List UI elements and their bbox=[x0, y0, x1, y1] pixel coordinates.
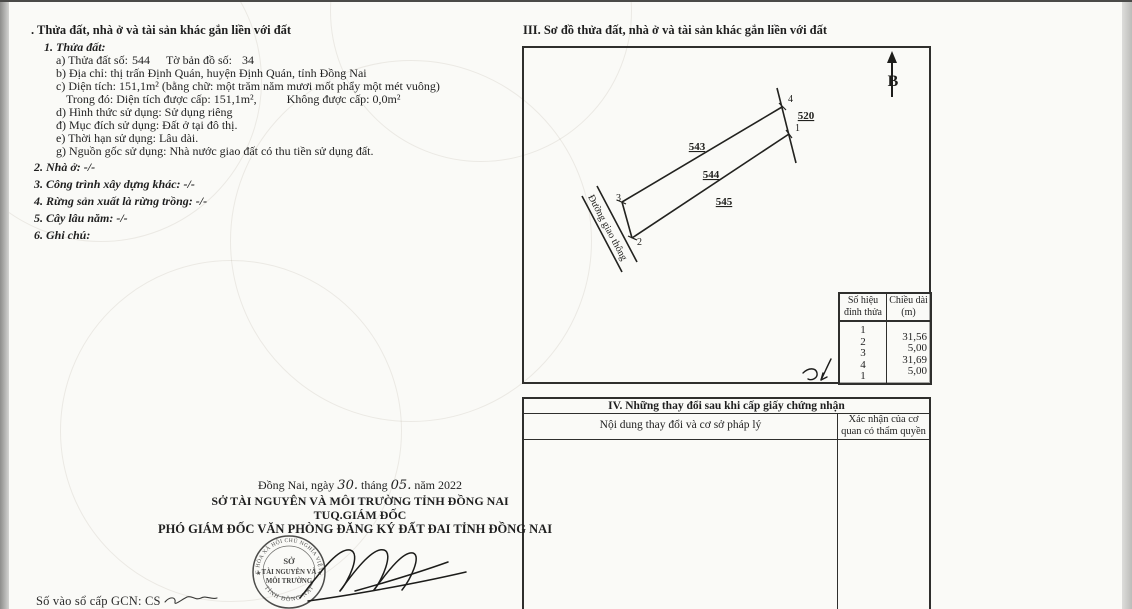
map-sheet-value: 34 bbox=[242, 53, 254, 67]
date-year: năm 2022 bbox=[414, 478, 462, 492]
vertex-id: 1 bbox=[840, 371, 886, 383]
map-sheet-label: Tờ bản đồ số: bbox=[166, 53, 232, 67]
date-month-handwritten: 05. bbox=[391, 478, 412, 493]
changes-table: IV. Những thay đổi sau khi cấp giấy chứn… bbox=[522, 397, 931, 609]
watermark-circle bbox=[60, 260, 402, 602]
parcel-number-value: 544 bbox=[132, 53, 150, 67]
vertex-id-header-line1: Số hiệu bbox=[840, 295, 886, 307]
vertex-id-header: Số hiệu đỉnh thửa bbox=[840, 295, 886, 318]
changes-table-title: IV. Những thay đổi sau khi cấp giấy chứn… bbox=[524, 399, 929, 413]
length-header-line2: (m) bbox=[887, 307, 930, 319]
date-place: Đồng Nai, ngày bbox=[258, 478, 334, 492]
scan-edge-top bbox=[0, 0, 1132, 2]
parcel-number-label: a) Thửa đất số: bbox=[56, 53, 128, 67]
registry-number-note: Số vào sổ cấp GCN: CS bbox=[36, 594, 161, 609]
item-other-construction: 3. Công trình xây dựng khác: -/- bbox=[34, 178, 195, 191]
date-day-handwritten: 30. bbox=[337, 478, 358, 493]
changes-content-header: Nội dung thay đổi và cơ sở pháp lý bbox=[524, 419, 837, 431]
scanned-land-certificate-page: . Thửa đất, nhà ở và tài sản khác gắn li… bbox=[0, 0, 1132, 609]
authority-line: TUQ.GIÁM ĐỐC bbox=[150, 509, 570, 522]
issuing-org: SỞ TÀI NGUYÊN VÀ MÔI TRƯỜNG TỈNH ĐỒNG NA… bbox=[150, 495, 570, 508]
item-house: 2. Nhà ở: -/- bbox=[34, 161, 95, 174]
changes-confirm-header: Xác nhận của cơ quan có thẩm quyền bbox=[839, 414, 928, 437]
item-notes: 6. Ghi chú: bbox=[34, 229, 90, 242]
edge-length-column: 31,56 5,00 31,69 5,00 bbox=[887, 332, 927, 378]
not-granted-area: Không được cấp: 0,0m² bbox=[287, 92, 401, 106]
item-forest: 4. Rừng sản xuất là rừng trồng: -/- bbox=[34, 195, 207, 208]
length-header: Chiều dài (m) bbox=[887, 295, 930, 318]
changes-confirm-line2: quan có thẩm quyền bbox=[839, 426, 928, 438]
granted-area: Trong đó: Diện tích được cấp: 151,1m², bbox=[66, 92, 257, 106]
changes-table-column-divider bbox=[837, 413, 838, 609]
item-perennial-trees: 5. Cây lâu năm: -/- bbox=[34, 212, 128, 225]
scan-edge-right bbox=[1122, 0, 1132, 609]
length-header-line1: Chiều dài bbox=[887, 295, 930, 307]
vertex-table: Số hiệu đỉnh thửa Chiều dài (m) 1 2 3 4 … bbox=[838, 292, 932, 385]
signature-date-line: Đồng Nai, ngày 30. tháng 05. năm 2022 bbox=[150, 479, 570, 492]
vertex-id-column: 1 2 3 4 1 bbox=[840, 325, 886, 383]
changes-table-rule2 bbox=[524, 439, 929, 440]
edge-length: 5,00 bbox=[887, 366, 927, 377]
vertex-id-header-line2: đỉnh thửa bbox=[840, 307, 886, 319]
parcel-section-title: . Thửa đất, nhà ở và tài sản khác gắn li… bbox=[31, 24, 291, 37]
map-section-title: III. Sơ đồ thửa đất, nhà ở và tài sản kh… bbox=[523, 24, 827, 37]
vertex-table-header-rule bbox=[840, 320, 930, 322]
parcel-line-origin: g) Nguồn gốc sử dụng: Nhà nước giao đất … bbox=[56, 145, 373, 158]
vertex-id: 1 bbox=[840, 325, 886, 337]
changes-confirm-line1: Xác nhận của cơ bbox=[839, 414, 928, 426]
scan-edge-left bbox=[0, 0, 9, 609]
signer-title: PHÓ GIÁM ĐỐC VĂN PHÒNG ĐĂNG KÝ ĐẤT ĐAI T… bbox=[115, 523, 595, 536]
date-month-label: tháng bbox=[361, 478, 388, 492]
